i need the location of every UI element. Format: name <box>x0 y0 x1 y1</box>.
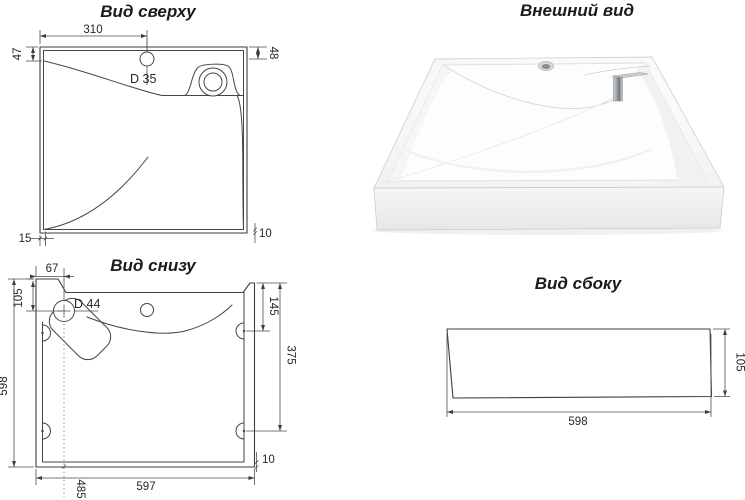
dim-line-145 <box>246 283 287 331</box>
bottom-view: Вид снизу 67 105 <box>0 256 297 499</box>
drain-recess-outer-circle <box>199 68 227 96</box>
sink-technical-drawing-page: Вид сверху 310 47 48 D 35 15 10 Внешний … <box>0 0 745 500</box>
dim-105-side: 105 <box>734 352 745 371</box>
dim-47: 47 <box>12 48 24 61</box>
bottom-view-base-footprint <box>43 293 245 463</box>
basin-right-edge <box>237 96 244 230</box>
dim-310: 310 <box>83 24 102 36</box>
dim-67: 67 <box>46 263 59 275</box>
mounting-hole-left-bottom <box>43 423 51 439</box>
faucet-hole-circle <box>140 52 154 66</box>
drain-label: D 44 <box>74 297 100 311</box>
dim-597: 597 <box>136 481 155 493</box>
sink-front-face <box>374 187 724 230</box>
dim-48: 48 <box>267 47 279 60</box>
dim-485: 485 <box>74 479 86 498</box>
faucet-hole-from-below <box>141 304 154 317</box>
mounting-hole-left-bottom-center <box>41 430 43 432</box>
dim-105: 105 <box>13 288 25 307</box>
mounting-hole-right-bottom-center <box>243 430 245 432</box>
top-view: Вид сверху 310 47 48 D 35 15 10 <box>12 2 279 246</box>
dim-598-side: 598 <box>568 416 587 428</box>
dim-10-top: 10 <box>259 228 272 240</box>
dim-line-598-side <box>447 334 711 417</box>
faucet-hole-3d-inner <box>542 64 551 69</box>
external-view: Внешний вид <box>372 1 724 235</box>
side-view: Вид сбоку 598 105 <box>447 274 745 428</box>
external-view-title: Внешний вид <box>520 1 634 20</box>
dim-line-15 <box>31 232 54 247</box>
dim-line-10-bottom <box>255 452 259 472</box>
dim-598-depth: 598 <box>0 376 10 395</box>
dim-145: 145 <box>267 296 279 315</box>
faucet-hole-label: D 35 <box>130 72 156 86</box>
mounting-hole-left-top-center <box>41 332 43 334</box>
dim-line-10-top <box>253 223 256 243</box>
bottom-view-title: Вид снизу <box>110 256 197 275</box>
dim-line-375 <box>246 283 287 431</box>
side-view-title: Вид сбоку <box>535 274 623 293</box>
basin-bottom-slope-line <box>44 157 148 230</box>
mounting-hole-left-top <box>43 325 51 341</box>
top-view-title: Вид сверху <box>100 2 197 21</box>
side-view-outline <box>447 329 712 398</box>
dim-line-105-side <box>713 329 730 397</box>
dim-10-bottom: 10 <box>262 454 275 466</box>
basin-curve-from-below <box>87 305 232 333</box>
dim-15: 15 <box>19 233 32 245</box>
drain-slot-chrome <box>614 77 623 101</box>
mounting-hole-right-top-center <box>243 330 245 332</box>
dim-375: 375 <box>285 345 297 364</box>
drawing-canvas: Вид сверху 310 47 48 D 35 15 10 Внешний … <box>0 0 745 500</box>
